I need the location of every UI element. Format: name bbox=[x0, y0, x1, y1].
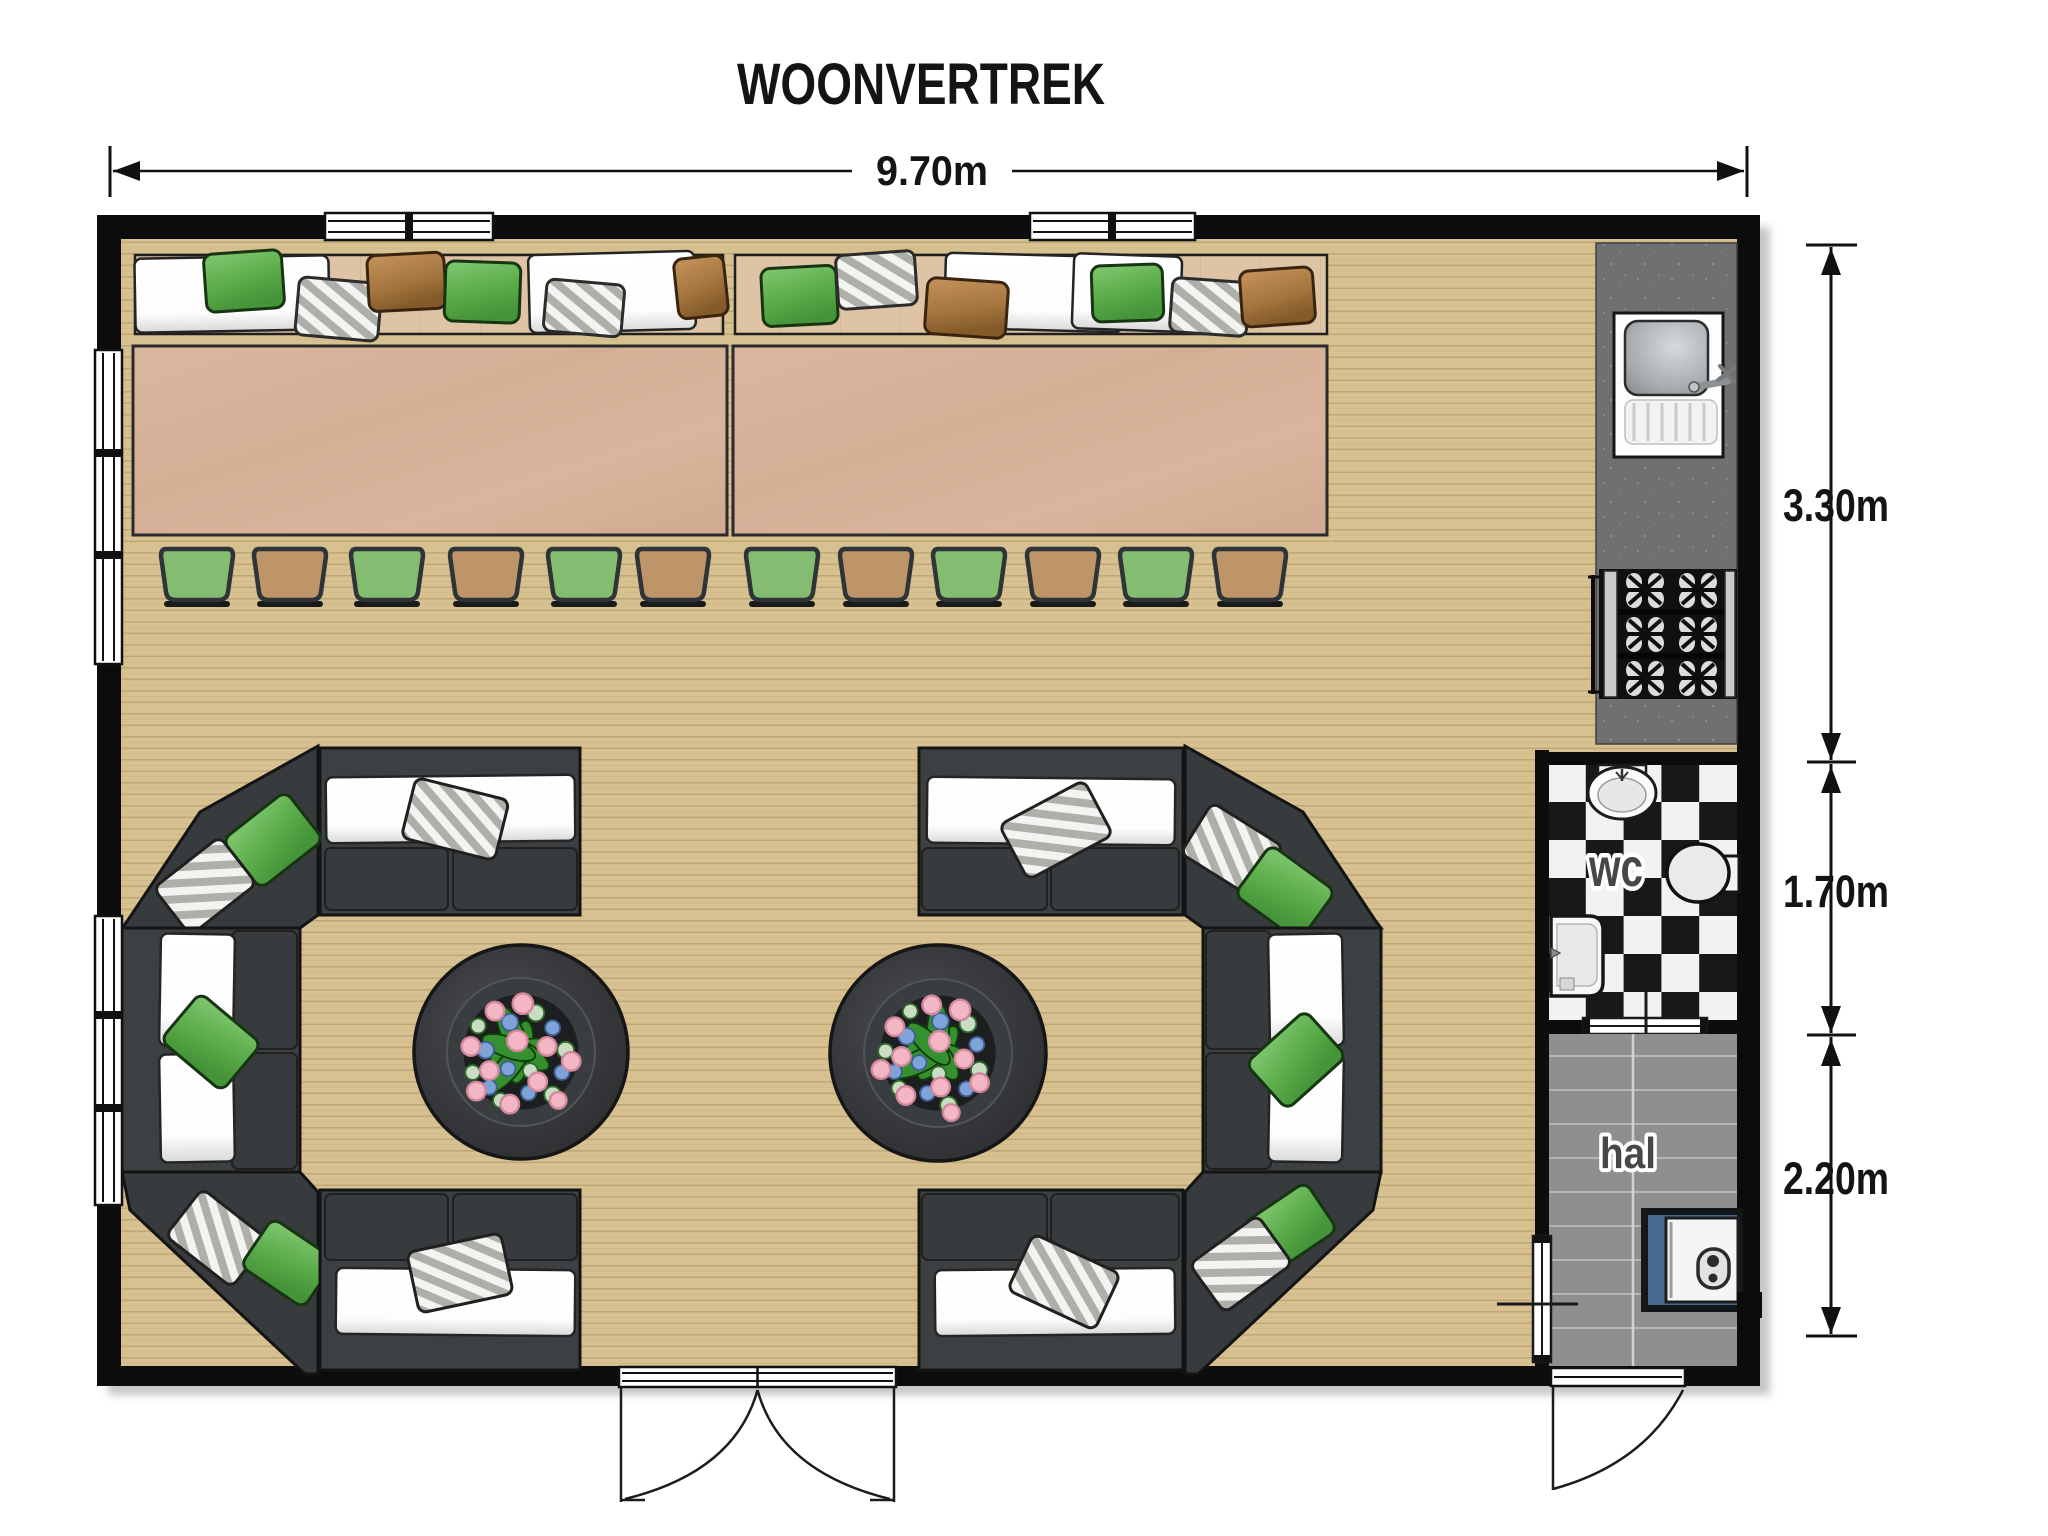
svg-text:wc: wc bbox=[1588, 838, 1643, 898]
svg-text:9.70m: 9.70m bbox=[876, 147, 988, 194]
svg-text:2.20m: 2.20m bbox=[1783, 1153, 1889, 1204]
svg-text:1.70m: 1.70m bbox=[1783, 866, 1889, 917]
svg-text:hal: hal bbox=[1600, 1129, 1656, 1178]
svg-text:WOONVERTREK: WOONVERTREK bbox=[737, 52, 1105, 117]
svg-text:3.30m: 3.30m bbox=[1783, 480, 1889, 531]
